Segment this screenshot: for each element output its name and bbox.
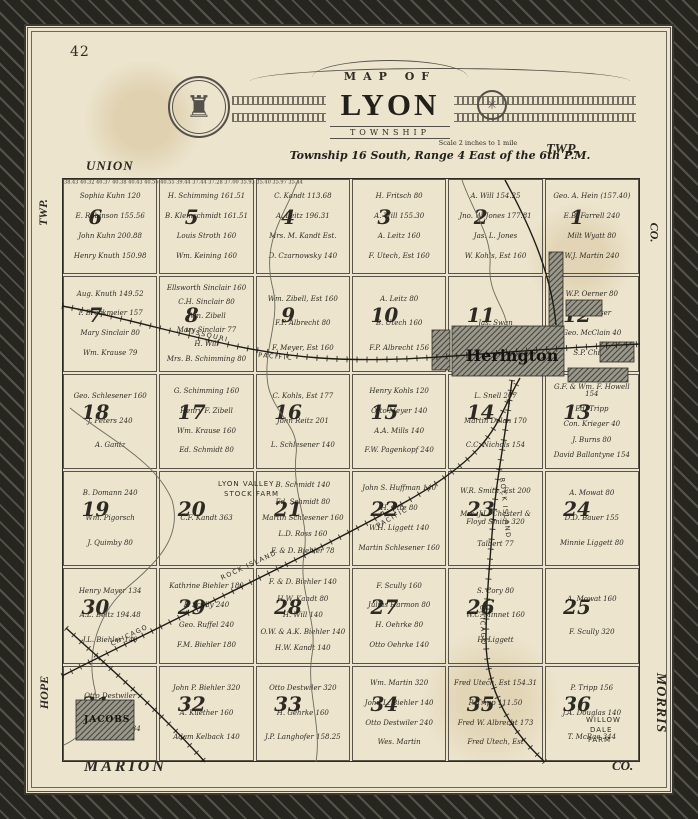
owner-label: F. Scully 160: [376, 583, 421, 590]
owner-label: B. Schmidt 140: [276, 482, 331, 489]
section-number: 25: [563, 595, 591, 619]
edge-label-hope: HOPE: [37, 676, 52, 709]
owner-label: H.W. Kandt 140: [275, 645, 331, 652]
scale-note: Scale 2 inches to 1 mile: [398, 139, 558, 147]
owner-label: G. Schimming 160: [174, 388, 239, 395]
owner-label: C. Kandt 113.68: [274, 193, 331, 200]
owner-label: Henry Knuth 150.98: [74, 253, 147, 260]
section-number: 20: [178, 497, 206, 521]
owner-list: Henry Mayer 134A.L. Beltz 194.48J.L. Bie…: [65, 570, 155, 661]
section-17: G. Schimming 160Henry F. ZibellWm. Kraus…: [159, 374, 253, 469]
section-number: 36: [563, 692, 591, 716]
owner-label: Wm. Krause 79: [83, 350, 137, 357]
derrick-seal-icon: ♜: [168, 76, 230, 138]
owner-list: A. Leitz 80B. Utech 160F.P. Albrecht 156: [354, 278, 444, 369]
owner-list: A. Mowat 80D.D. Bauer 155Minnie Liggett …: [547, 473, 637, 564]
section-16: C. Kohls, Est 177John Reitz 201L. Schles…: [256, 374, 350, 469]
section-number: 11: [467, 303, 495, 327]
owner-label: Otto Destwiler 240: [365, 720, 433, 727]
owner-list: W.R. Smith, Est 200Mrs. J.L. Chesterl & …: [450, 473, 540, 564]
owner-label: T. Brockmeier 157: [78, 310, 143, 317]
owner-list: Aug. Knuth 149.52T. Brockmeier 157Mary S…: [65, 278, 155, 369]
section-18: Geo. Schlesener 160J. Peters 240A. Gantz…: [63, 374, 157, 469]
owner-list: Ellsworth Sinclair 160C.H. Sinclair 80Wm…: [161, 278, 251, 369]
owner-list: G.F. & Wm. F. Howell 154Ed. TrippCon. Kr…: [547, 376, 637, 467]
owner-label: A. Leitz 160: [378, 233, 421, 240]
section-9: Wm. Zibell, Est 160F.P. Albrecht 80F. Me…: [256, 276, 350, 371]
section-1: Geo. A. Hein (157.40)E.B. Farrell 240Mil…: [545, 179, 639, 274]
section-7: Aug. Knuth 149.52T. Brockmeier 157Mary S…: [63, 276, 157, 371]
owner-label: Talbert 77: [477, 541, 513, 548]
section-number: 35: [467, 692, 495, 716]
owner-label: F.P. Albrecht 156: [369, 345, 429, 352]
owner-list: L. Snell 207Martin Dolan 170C.C. Nichols…: [450, 376, 540, 467]
section-34: Wm. Martin 320John L. Biehler 140Otto De…: [352, 666, 446, 761]
owner-label: F.M. Biehler 180: [177, 642, 236, 649]
section-10: A. Leitz 80B. Utech 160F.P. Albrecht 156…: [352, 276, 446, 371]
owner-label: H. Schimming 161.51: [168, 193, 245, 200]
owner-list: B. Domann 240Wm. PigorschJ. Quimby 80: [65, 473, 155, 564]
section-6: Sophia Kuhn 120E. Robinson 155.56John Ku…: [63, 179, 157, 274]
owner-list: C. Kohls, Est 177John Reitz 201L. Schles…: [258, 376, 348, 467]
owner-label: Sophia Kuhn 120: [80, 193, 141, 200]
section-8: Ellsworth Sinclair 160C.H. Sinclair 80Wm…: [159, 276, 253, 371]
owner-label: L.D. Ross 160: [278, 531, 327, 538]
section-5: H. Schimming 161.51B. Kleinschmidt 161.5…: [159, 179, 253, 274]
section-number: 3: [377, 205, 391, 229]
owner-label: Fred W. Albrecht 173: [458, 720, 534, 727]
section-number: 1: [570, 205, 584, 229]
owner-label: Wm. Krause 160: [177, 428, 236, 435]
owner-label: J.P. Langhofer 158.25: [265, 734, 341, 741]
owner-label: Kathrine Biehler 180: [169, 583, 244, 590]
section-25: A. Mowat 160F. Scully 32025: [545, 568, 639, 663]
section-number: 5: [185, 205, 199, 229]
owner-label: J.L. Biehler 140: [83, 637, 138, 644]
owner-label: Wes. Martin: [378, 739, 421, 746]
owner-label: W.H. Liggett 140: [369, 525, 429, 532]
legal-description: Township 16 South, Range 4 East of the 6…: [240, 149, 640, 162]
owner-label: Fred Utech, Est 154.31: [454, 680, 537, 687]
owner-list: P. Tripp 156J.A. Douglas 140T. McRae 344: [547, 668, 637, 759]
owner-label: D. Czarnowsky 140: [269, 253, 337, 260]
owner-label: F. & D. Biehler 78: [271, 548, 334, 555]
owner-label: Ed. Schmidt 80: [179, 447, 234, 454]
owner-list: C. Kandt 113.68A. Leitz 196.31Mrs. M. Ka…: [258, 181, 348, 272]
owner-label: A. Gantz: [95, 442, 125, 449]
section-2: A. Will 154.25Jno. W. Jones 177.81Jas. L…: [448, 179, 542, 274]
section-number: 6: [88, 205, 102, 229]
township-name: LYON: [341, 87, 440, 123]
edge-label-twp-left: TWP.: [36, 199, 51, 226]
owner-label: F. Utech, Est 160: [369, 253, 430, 260]
section-number: 26: [467, 595, 495, 619]
owner-label: Mrs. B. Schimming 80: [167, 356, 246, 363]
owner-label: O.W. & A.K. Biehler 140: [260, 629, 345, 636]
section-number: 15: [370, 400, 398, 424]
owner-label: Mrs. J.L. Chesterl & Floyd Smith 320: [453, 511, 539, 526]
section-number: 23: [467, 497, 495, 521]
owner-list: John P. Biehler 320A. Kuether 160Adam Ke…: [161, 668, 251, 759]
section-number: 32: [178, 692, 206, 716]
owner-label: Geo. Ruffel 240: [179, 622, 234, 629]
owner-label: S.P. Childs: [573, 350, 610, 357]
owner-list: C.F. Kandt 363: [161, 473, 251, 564]
owner-label: W.J. Martin 240: [564, 253, 619, 260]
owner-label: Mrs. M. Kandt Est.: [269, 233, 336, 240]
owner-label: F. Meyer, Est 160: [272, 345, 334, 352]
owner-label: Wm. Zibell, Est 160: [268, 296, 338, 303]
owner-label: E. Robinson 155.56: [76, 213, 145, 220]
owner-label: A.A. Mills 140: [374, 428, 424, 435]
owner-label: W. Kohls, Est 160: [465, 253, 527, 260]
section-number: 9: [281, 303, 295, 327]
owner-list: H. Fritsch 80A. Will 155.30A. Leitz 160F…: [354, 181, 444, 272]
wheel-ornament-icon: ✳: [477, 90, 507, 120]
section-21: B. Schmidt 140Ed. Schmidt 80Martin Schle…: [256, 471, 350, 566]
owner-list: Geo. Schlesener 160J. Peters 240A. Gantz: [65, 376, 155, 467]
section-28: F. & D. Biehler 140H.W. Kandt 80H. Will …: [256, 568, 350, 663]
owner-label: Wm. Keining 160: [176, 253, 237, 260]
owner-label: G.F. & Wm. F. Howell 154: [549, 384, 635, 399]
owner-list: Wm. Martin 320John L. Biehler 140Otto De…: [354, 668, 444, 759]
owner-label: H. Fritsch 80: [376, 193, 423, 200]
owner-label: F. Scully 320: [569, 629, 614, 636]
township-subtitle: TOWNSHIP: [330, 126, 450, 139]
section-14: L. Snell 207Martin Dolan 170C.C. Nichols…: [448, 374, 542, 469]
owner-label: Milt Wyatt 80: [568, 233, 617, 240]
owner-list: Jas. Swan: [450, 278, 540, 369]
owner-label: Mary Sinclair 77: [177, 327, 236, 334]
owner-label: H. Will: [194, 341, 218, 348]
owner-label: Fred Utech, Est: [467, 739, 523, 746]
owner-label: Adam Kelback 140: [173, 734, 239, 741]
section-36: P. Tripp 156J.A. Douglas 140T. McRae 344…: [545, 666, 639, 761]
owner-label: Minnie Liggett 80: [560, 540, 624, 547]
page-number: 42: [70, 44, 90, 60]
section-24: A. Mowat 80D.D. Bauer 155Minnie Liggett …: [545, 471, 639, 566]
section-number: 13: [563, 400, 591, 424]
owner-list: W.P. Oerner 80J.E. KooserGeo. McClain 40…: [547, 278, 637, 369]
owner-list: Otto DestwilerA.L. Beltz 218.34: [65, 668, 155, 759]
owner-label: Jno. W. Jones 177.81: [459, 213, 531, 220]
owner-label: Ellsworth Sinclair 160: [167, 285, 246, 292]
owner-label: F.W. Pagenkopf 240: [365, 447, 434, 454]
section-30: Henry Mayer 134A.L. Beltz 194.48J.L. Bie…: [63, 568, 157, 663]
section-number: 4: [281, 205, 295, 229]
section-4: C. Kandt 113.68A. Leitz 196.31Mrs. M. Ka…: [256, 179, 350, 274]
owner-list: Geo. A. Hein (157.40)E.B. Farrell 240Mil…: [547, 181, 637, 272]
owner-label: L. Schlesener 140: [271, 442, 335, 449]
owner-label: A.L. Beltz 218.34: [80, 726, 141, 733]
owner-label: T. McRae 344: [568, 734, 617, 741]
owner-label: Louis Stroth 160: [177, 233, 237, 240]
section-number: 24: [563, 497, 591, 521]
section-number: 30: [81, 595, 109, 619]
section-number: 18: [81, 400, 109, 424]
edge-label-morris: MORRIS: [652, 673, 668, 733]
section-number: 14: [467, 400, 495, 424]
owner-list: Otto Destwiler 320H. Gehrke 160J.P. Lang…: [258, 668, 348, 759]
section-grid: Sophia Kuhn 120E. Robinson 155.56John Ku…: [62, 178, 640, 762]
owner-list: Kathrine Biehler 180F. Scully 240Geo. Ru…: [161, 570, 251, 661]
section-29: Kathrine Biehler 180F. Scully 240Geo. Ru…: [159, 568, 253, 663]
owner-label: J. Quimby 80: [87, 540, 132, 547]
section-33: Otto Destwiler 320H. Gehrke 160J.P. Lang…: [256, 666, 350, 761]
owner-label: Otto Oehrke 140: [369, 642, 429, 649]
owner-list: Sophia Kuhn 120E. Robinson 155.56John Ku…: [65, 181, 155, 272]
section-27: F. Scully 160Julius Harmon 80H. Oehrke 8…: [352, 568, 446, 663]
section-31: Otto DestwilerA.L. Beltz 218.3431: [63, 666, 157, 761]
section-number: 16: [274, 400, 302, 424]
owner-label: A. Will 154.25: [470, 193, 520, 200]
owner-list: F. Scully 160Julius Harmon 80H. Oehrke 8…: [354, 570, 444, 661]
section-number: 10: [370, 303, 398, 327]
section-number: 22: [370, 497, 398, 521]
owner-label: H. Oehrke 80: [375, 622, 423, 629]
owner-label: B. Kleinschmidt 161.51: [165, 213, 248, 220]
owner-list: John S. Huffman 140H. Otte 80W.H. Ligget…: [354, 473, 444, 564]
owner-label: H. Liggett: [477, 637, 513, 644]
section-20: C.F. Kandt 36320: [159, 471, 253, 566]
owner-label: Mary Sinclair 80: [80, 330, 139, 337]
section-number: 27: [370, 595, 398, 619]
section-35: Fred Utech, Est 154.31P. Tripp 111.50Fre…: [448, 666, 542, 761]
owner-label: John Kuhn 200.88: [78, 233, 142, 240]
title-kicker: MAP OF: [300, 70, 480, 83]
section-number: 8: [185, 303, 199, 327]
owner-label: Jas. L. Jones: [474, 233, 517, 240]
section-number: 33: [274, 692, 302, 716]
edge-label-co-right: CO.: [646, 223, 661, 243]
owner-label: Geo. McClain 40: [562, 330, 621, 337]
section-26: S. Cory 80W.C. Minnet 160H. Liggett26: [448, 568, 542, 663]
section-number: 28: [274, 595, 302, 619]
section-32: John P. Biehler 320A. Kuether 160Adam Ke…: [159, 666, 253, 761]
section-number: 7: [88, 303, 102, 327]
owner-label: F. & D. Biehler 140: [269, 579, 337, 586]
edge-label-twp-top-right: TWP.: [546, 142, 577, 158]
township-title-box: LYON: [326, 84, 454, 126]
section-11: Jas. Swan11: [448, 276, 542, 371]
owner-label: W.P. Oerner 80: [566, 291, 618, 298]
owner-label: Geo. A. Hein (157.40): [553, 193, 630, 200]
section-number: 2: [474, 205, 488, 229]
section-number: 19: [81, 497, 109, 521]
owner-list: S. Cory 80W.C. Minnet 160H. Liggett: [450, 570, 540, 661]
section-13: G.F. & Wm. F. Howell 154Ed. TrippCon. Kr…: [545, 374, 639, 469]
owner-label: C.C. Nichols 154: [466, 442, 525, 449]
section-number: 34: [370, 692, 398, 716]
section-number: 21: [274, 497, 302, 521]
owner-label: David Ballantyne 154: [554, 452, 630, 459]
owner-label: Henry Kohls 120: [369, 388, 428, 395]
owner-list: Henry Kohls 120Otto Meyer 140A.A. Mills …: [354, 376, 444, 467]
owner-label: John S. Huffman 140: [362, 485, 436, 492]
owner-list: Wm. Zibell, Est 160F.P. Albrecht 80F. Me…: [258, 278, 348, 369]
owner-list: G. Schimming 160Henry F. ZibellWm. Kraus…: [161, 376, 251, 467]
owner-label: Aug. Knuth 149.52: [77, 291, 144, 298]
owner-label: Wm. Martin 320: [370, 680, 428, 687]
section-19: B. Domann 240Wm. PigorschJ. Quimby 8019: [63, 471, 157, 566]
section-number: 29: [178, 595, 206, 619]
owner-list: B. Schmidt 140Ed. Schmidt 80Martin Schle…: [258, 473, 348, 564]
section-number: 12: [563, 303, 591, 327]
atlas-page: { "page_number": "42", "title": { "kicke…: [0, 0, 698, 819]
owner-list: H. Schimming 161.51B. Kleinschmidt 161.5…: [161, 181, 251, 272]
section-number: 31: [81, 692, 109, 716]
owner-list: A. Mowat 160F. Scully 320: [547, 570, 637, 661]
owner-list: A. Will 154.25Jno. W. Jones 177.81Jas. L…: [450, 181, 540, 272]
section-number: 17: [178, 400, 206, 424]
owner-label: W.R. Smith, Est 200: [460, 488, 530, 495]
section-22: John S. Huffman 140H. Otte 80W.H. Ligget…: [352, 471, 446, 566]
section-15: Henry Kohls 120Otto Meyer 140A.A. Mills …: [352, 374, 446, 469]
section-3: H. Fritsch 80A. Will 155.30A. Leitz 160F…: [352, 179, 446, 274]
section-23: W.R. Smith, Est 200Mrs. J.L. Chesterl & …: [448, 471, 542, 566]
owner-label: J. Burns 80: [572, 437, 611, 444]
edge-label-union: UNION: [86, 158, 134, 174]
owner-label: Martin Schlesener 160: [358, 545, 439, 552]
section-12: W.P. Oerner 80J.E. KooserGeo. McClain 40…: [545, 276, 639, 371]
owner-list: F. & D. Biehler 140H.W. Kandt 80H. Will …: [258, 570, 348, 661]
owner-list: Fred Utech, Est 154.31P. Tripp 111.50Fre…: [450, 668, 540, 759]
